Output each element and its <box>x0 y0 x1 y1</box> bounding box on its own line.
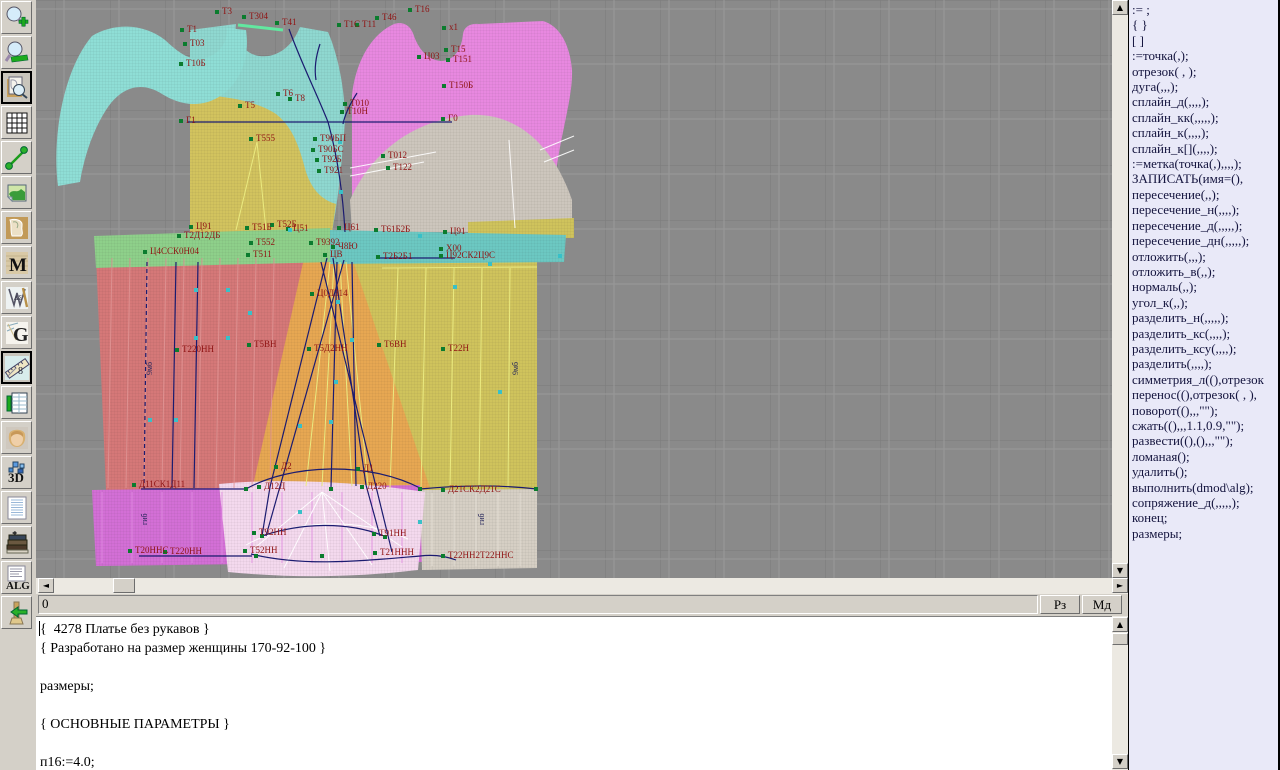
command-reference-panel: := ;{ }[ ]:=точка(,);отрезок( , );дуга(,… <box>1128 0 1280 770</box>
point-marker <box>148 418 152 422</box>
point-marker <box>307 347 311 351</box>
point-marker <box>174 418 178 422</box>
point-marker <box>215 10 219 14</box>
svg-text:ALG: ALG <box>6 580 30 591</box>
point-label: Ц4ССК0Н04 <box>150 246 200 256</box>
point-marker <box>248 311 252 315</box>
toolbar-alg-doc-icon[interactable]: ALG <box>1 561 32 594</box>
point-label: Т511 <box>253 249 272 259</box>
left-toolbar: MΔΣG83DALG <box>0 0 37 770</box>
canvas-hscroll-thumb[interactable] <box>113 578 135 593</box>
point-label: ЦВ <box>330 249 343 259</box>
command-item[interactable]: { } <box>1132 17 1278 32</box>
grain-label: гиб <box>140 513 149 525</box>
point-label: Т2Б2Б1 <box>383 251 412 261</box>
pattern-canvas-area[interactable]: Т3Т304Т41Т1Т03Т10БТ5Т6Т8Г1Т555Т90БПТ90БС… <box>36 0 1112 578</box>
point-label: Т921 <box>324 165 343 175</box>
status-bar: 0 Рз Мд <box>36 594 1128 616</box>
point-marker <box>177 234 181 238</box>
editor-scroll-down-icon[interactable]: ▼ <box>1112 754 1128 769</box>
point-label: Т8 <box>295 93 305 103</box>
command-item[interactable]: угол_к(,,); <box>1132 295 1278 310</box>
point-label: Т1С <box>344 19 360 29</box>
md-button[interactable]: Мд <box>1082 595 1122 614</box>
point-label: Д1 <box>363 463 374 473</box>
point-label: Г1 <box>186 115 196 125</box>
command-item[interactable]: симметрия_л((),отрезок <box>1132 372 1278 387</box>
point-label: Д2 <box>281 461 292 471</box>
toolbar-preview-icon[interactable] <box>1 71 32 104</box>
point-marker <box>350 338 354 342</box>
point-label: Т51Б <box>252 222 272 232</box>
point-marker <box>238 104 242 108</box>
point-marker <box>194 288 198 292</box>
rz-button[interactable]: Рз <box>1040 595 1080 614</box>
point-label: Т11 <box>362 19 376 29</box>
command-item[interactable]: сплайн_к[](,,,,); <box>1132 141 1278 156</box>
point-label: Т22НН2Т22ННС <box>448 550 514 560</box>
point-label: Ц03 <box>424 51 440 61</box>
point-marker <box>329 420 333 424</box>
point-marker <box>334 380 338 384</box>
point-marker <box>311 148 315 152</box>
point-marker <box>175 348 179 352</box>
point-marker <box>246 253 250 257</box>
point-label: Т90БП <box>320 133 347 143</box>
toolbar-segment-icon[interactable] <box>1 141 32 174</box>
toolbar-zoom-out-icon[interactable] <box>1 36 32 69</box>
command-item[interactable]: пересечение_д(,,,,,); <box>1132 218 1278 233</box>
point-label: Т10Б <box>186 58 206 68</box>
point-label: Т3 <box>222 6 232 16</box>
toolbar-portrait-icon[interactable] <box>1 421 32 454</box>
point-label: Ц51 <box>293 223 309 233</box>
point-label: Т61Б2Б <box>381 224 410 234</box>
point-marker <box>417 55 421 59</box>
command-item[interactable]: размеры; <box>1132 526 1278 541</box>
toolbar-grid-icon[interactable] <box>1 106 32 139</box>
command-item[interactable]: поворот((),,,""); <box>1132 403 1278 418</box>
point-marker <box>309 241 313 245</box>
editor-line: { Разработано на размер женщины 170-92-1… <box>40 639 1112 658</box>
app-window: MΔΣG83DALG Т3Т304Т41Т1Т03Т10БТ5Т6Т8Г1Т55… <box>0 0 1280 770</box>
point-marker <box>320 554 324 558</box>
point-label: Т012 <box>388 150 407 160</box>
command-item[interactable]: конец; <box>1132 510 1278 525</box>
command-item[interactable]: ЗАПИСАТЬ(имя=(), <box>1132 171 1278 186</box>
command-item[interactable]: разделить_н(,,,,,); <box>1132 310 1278 325</box>
toolbar-three-d-icon[interactable]: 3D <box>1 456 32 489</box>
point-marker <box>443 230 447 234</box>
point-marker <box>226 336 230 340</box>
point-marker <box>444 48 448 52</box>
point-marker <box>498 390 502 394</box>
command-item[interactable]: ломаная(); <box>1132 449 1278 464</box>
point-label: Т20ННС <box>135 545 169 555</box>
point-label: Ц92СК2Ц9С <box>446 250 495 260</box>
point-marker <box>373 551 377 555</box>
point-label: Т150Б <box>449 80 473 90</box>
point-marker <box>418 520 422 524</box>
point-marker <box>249 241 253 245</box>
svg-text:ΔΣ: ΔΣ <box>14 295 22 302</box>
command-item[interactable]: пересечение(,,); <box>1132 187 1278 202</box>
grain-label: 9мб <box>511 362 520 375</box>
command-item[interactable]: :=точка(,); <box>1132 48 1278 63</box>
command-item[interactable]: сплайн_к(,,,,); <box>1132 125 1278 140</box>
point-label: Т21ННН <box>380 547 414 557</box>
point-marker <box>310 292 314 296</box>
point-label: Т2Д12ДБ <box>184 230 220 240</box>
point-marker <box>377 343 381 347</box>
point-label: Т5 <box>245 100 255 110</box>
point-marker <box>339 190 343 194</box>
point-marker <box>381 154 385 158</box>
point-marker <box>276 92 280 96</box>
point-label: Д12Д <box>264 481 285 491</box>
point-marker <box>179 62 183 66</box>
point-marker <box>446 58 450 62</box>
command-item[interactable]: сопряжение_д(,,,,,); <box>1132 495 1278 510</box>
point-marker <box>441 554 445 558</box>
point-label: Т92НН <box>259 527 287 537</box>
editor-line: { 4278 Платье без рукавов } <box>40 620 1112 639</box>
point-marker <box>441 488 445 492</box>
point-label: Т22Н <box>448 343 469 353</box>
point-marker <box>386 166 390 170</box>
point-marker <box>340 110 344 114</box>
canvas-scroll-up-icon[interactable]: ▲ <box>1112 0 1128 15</box>
point-marker <box>336 300 340 304</box>
command-item[interactable]: сплайн_кк(,,,,,); <box>1132 110 1278 125</box>
point-marker <box>356 467 360 471</box>
point-label: Т46 <box>382 12 397 22</box>
point-label: Т5Д2НН <box>314 343 348 353</box>
point-marker <box>315 158 319 162</box>
canvas-scroll-down-icon[interactable]: ▼ <box>1112 563 1128 578</box>
editor-vscroll-thumb[interactable] <box>1112 633 1128 645</box>
command-item[interactable]: сжать((),,,1.1,0.9,""); <box>1132 418 1278 433</box>
point-marker <box>189 225 193 229</box>
point-label: Т122 <box>393 162 412 172</box>
point-label: Т1 <box>187 24 197 34</box>
point-marker <box>257 485 261 489</box>
point-label: Т304 <box>249 11 268 21</box>
toolbar-table-icon[interactable] <box>1 386 32 419</box>
point-marker <box>534 487 538 491</box>
point-label: Д21СК2Д21С <box>448 484 501 494</box>
point-label: Т16 <box>415 4 430 14</box>
point-label: Т9392 <box>316 237 340 247</box>
command-item[interactable]: дуга(,,,); <box>1132 79 1278 94</box>
point-marker <box>442 84 446 88</box>
point-label: Т6 <box>283 88 293 98</box>
command-item[interactable]: перенос((),отрезок( , ), <box>1132 387 1278 402</box>
command-item[interactable]: разделить(,,,,); <box>1132 356 1278 371</box>
point-label: Д220 <box>367 481 387 491</box>
editor-vscrollbar[interactable]: ▲ ▼ <box>1112 616 1128 770</box>
toolbar-image-icon[interactable] <box>1 176 32 209</box>
point-marker <box>323 253 327 257</box>
toolbar-pattern-piece-icon[interactable] <box>1 211 32 244</box>
point-marker <box>418 487 422 491</box>
toolbar-exit-broom-icon[interactable] <box>1 596 32 629</box>
command-item[interactable]: [ ] <box>1132 33 1278 48</box>
command-item[interactable]: выполнить(dmod\alg); <box>1132 480 1278 495</box>
point-marker <box>408 8 412 12</box>
toolbar-drafting-tools-icon[interactable]: ΔΣ <box>1 281 32 314</box>
point-label: Т41 <box>282 17 297 27</box>
canvas-scroll-left-icon[interactable]: ◄ <box>38 578 54 593</box>
point-marker <box>179 119 183 123</box>
point-marker <box>249 137 253 141</box>
command-item[interactable]: разделить_кс(,,,,); <box>1132 326 1278 341</box>
point-marker <box>252 531 256 535</box>
canvas-hscrollbar[interactable]: ◄ ► <box>36 578 1128 594</box>
point-marker <box>242 15 246 19</box>
toolbar-measure-icon[interactable]: 8 <box>1 351 32 384</box>
toolbar-books-icon[interactable] <box>1 526 32 559</box>
point-label: Т5ВН <box>254 339 277 349</box>
point-label: Д11СК1Д11 <box>139 479 185 489</box>
editor-line: п16:=4.0; <box>40 753 1112 770</box>
command-item[interactable]: пересечение_н(,,,,); <box>1132 202 1278 217</box>
point-marker <box>247 343 251 347</box>
point-marker <box>439 254 443 258</box>
toolbar-list-doc-icon[interactable] <box>1 491 32 524</box>
point-marker <box>226 288 230 292</box>
point-marker <box>442 26 446 30</box>
point-label: Т90БС <box>318 144 344 154</box>
point-label: Т52НН <box>250 545 278 555</box>
command-item[interactable]: отрезок( , ); <box>1132 64 1278 79</box>
point-label: Т552 <box>256 237 275 247</box>
command-item[interactable]: удалить(); <box>1132 464 1278 479</box>
command-item[interactable]: пересечение_дн(,,,,,); <box>1132 233 1278 248</box>
point-label: Т10Н <box>347 106 368 116</box>
editor-line <box>40 696 1112 715</box>
editor-line <box>40 734 1112 753</box>
editor-line: размеры; <box>40 677 1112 696</box>
canvas-scroll-right-icon[interactable]: ► <box>1112 578 1128 593</box>
point-marker <box>244 487 248 491</box>
status-value: 0 <box>38 595 1038 614</box>
point-marker <box>337 23 341 27</box>
svg-text:8: 8 <box>18 366 23 377</box>
point-label: Т220НН <box>182 344 214 354</box>
point-marker <box>441 117 445 121</box>
svg-text:G: G <box>13 324 29 346</box>
grain-label: 9мб <box>145 362 154 375</box>
point-marker <box>558 254 562 258</box>
point-marker <box>360 485 364 489</box>
command-item[interactable]: := ; <box>1132 2 1278 17</box>
command-item[interactable]: сплайн_д(,,,,); <box>1132 94 1278 109</box>
point-label: х1 <box>449 22 458 32</box>
editor-line <box>40 658 1112 677</box>
point-marker <box>245 226 249 230</box>
point-marker <box>183 42 187 46</box>
grain-label: гиб <box>477 513 486 525</box>
svg-text:M: M <box>9 255 27 276</box>
point-marker <box>441 347 445 351</box>
point-marker <box>180 28 184 32</box>
point-marker <box>376 255 380 259</box>
point-label: Т92Б <box>322 154 342 164</box>
point-marker <box>298 510 302 514</box>
point-marker <box>298 424 302 428</box>
point-label: Т15 <box>451 44 466 54</box>
point-marker <box>313 137 317 141</box>
point-marker <box>274 465 278 469</box>
point-marker <box>317 169 321 173</box>
point-marker <box>275 21 279 25</box>
point-marker <box>374 228 378 232</box>
point-label: Ц0Д314 <box>317 288 348 298</box>
point-label: Т555 <box>256 133 275 143</box>
point-marker <box>337 226 341 230</box>
point-marker <box>243 549 247 553</box>
command-item[interactable]: нормаль(,,); <box>1132 279 1278 294</box>
point-label: Т91НН <box>379 528 407 538</box>
point-label: Г0 <box>448 113 458 123</box>
point-marker <box>439 247 443 251</box>
toolbar-fabric-m-icon[interactable]: M <box>1 246 32 279</box>
pattern-canvas[interactable]: Т3Т304Т41Т1Т03Т10БТ5Т6Т8Г1Т555Т90БПТ90БС… <box>36 0 1112 578</box>
editor-line: { ОСНОВНЫЕ ПАРАМЕТРЫ } <box>40 715 1112 734</box>
toolbar-zoom-in-icon[interactable] <box>1 1 32 34</box>
algorithm-editor[interactable]: { 4278 Платье без рукавов }{ Разработано… <box>36 616 1112 770</box>
point-marker <box>372 532 376 536</box>
command-item[interactable]: разделить_ксу(,,,,); <box>1132 341 1278 356</box>
command-item[interactable]: отложить(,,,); <box>1132 249 1278 264</box>
toolbar-g-logo-icon[interactable]: G <box>1 316 32 349</box>
command-item[interactable]: развести((),(),,,""); <box>1132 433 1278 448</box>
point-marker <box>453 285 457 289</box>
point-marker <box>128 549 132 553</box>
point-marker <box>488 262 492 266</box>
point-label: Ц91 <box>450 226 466 236</box>
point-marker <box>143 250 147 254</box>
point-marker <box>418 234 422 238</box>
point-label: Т151 <box>453 54 472 64</box>
canvas-vscrollbar[interactable]: ▲ ▼ <box>1112 0 1128 578</box>
point-marker <box>329 487 333 491</box>
point-label: Ц61 <box>344 222 360 232</box>
svg-text:3D: 3D <box>8 470 24 485</box>
point-label: Т03 <box>190 38 205 48</box>
point-label: Т220НН <box>170 546 202 556</box>
editor-scroll-up-icon[interactable]: ▲ <box>1112 617 1128 632</box>
point-marker <box>194 336 198 340</box>
point-label: Т6ВН <box>384 339 407 349</box>
command-item[interactable]: отложить_в(,,); <box>1132 264 1278 279</box>
command-item[interactable]: :=метка(точка(,),,,,); <box>1132 156 1278 171</box>
point-marker <box>132 483 136 487</box>
